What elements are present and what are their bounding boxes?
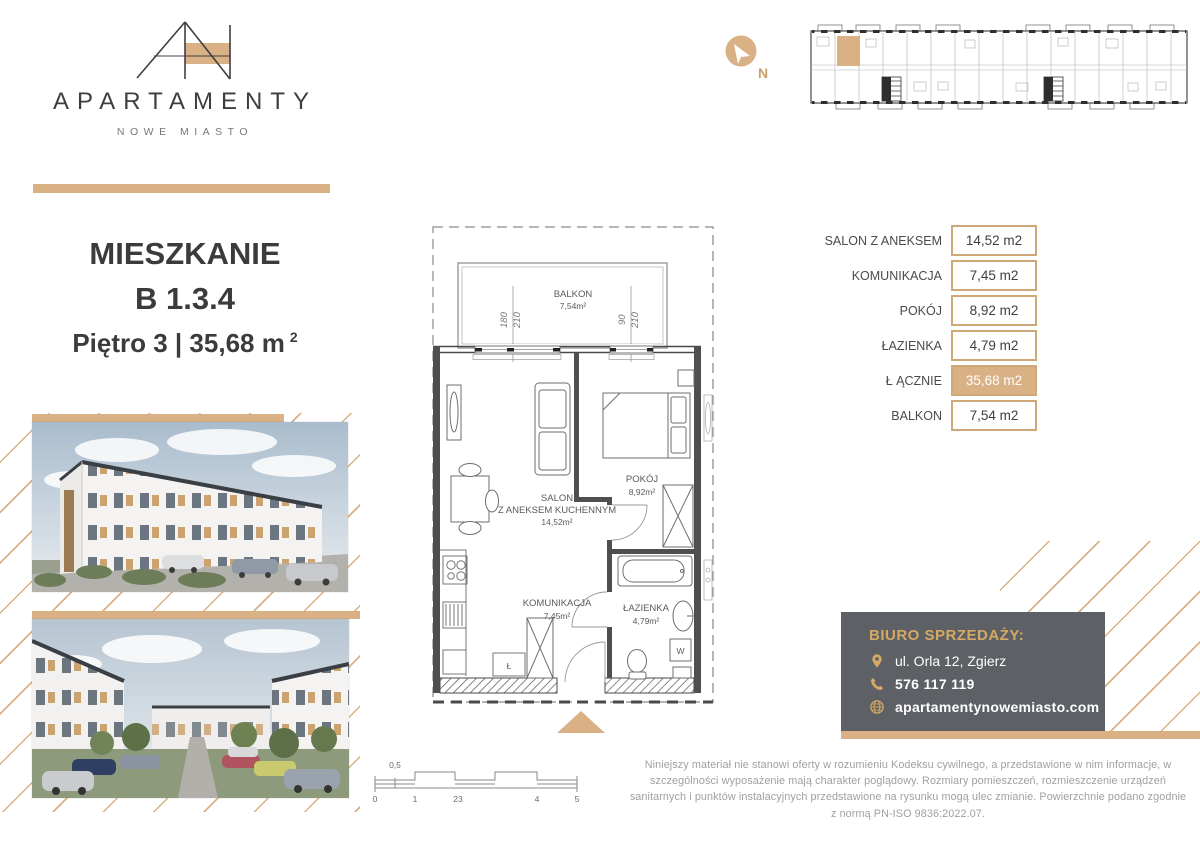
row-label: SALON Z ANEKSEM	[795, 234, 951, 248]
website-text[interactable]: apartamentynowemiasto.com	[895, 699, 1099, 715]
logo-monogram	[130, 18, 240, 82]
window1-width: 180	[499, 311, 510, 328]
overview-bottom-windows	[812, 101, 1186, 104]
row-label: KOMUNIKACJA	[795, 269, 951, 283]
building-photo-exterior	[32, 422, 348, 592]
pokoj-label: POKÓJ	[626, 474, 658, 485]
scale-5: 5	[575, 794, 580, 804]
scale-23: 23	[453, 794, 463, 804]
washer-label: W	[676, 646, 684, 656]
window-pokoj	[609, 344, 654, 360]
phone-icon	[869, 676, 885, 692]
sales-office-heading: BIURO SPRZEDAŻY:	[869, 627, 1105, 644]
kitchen	[440, 550, 525, 676]
row-value: 8,92 m2	[951, 295, 1037, 326]
salon-label-1: SALON	[541, 493, 573, 504]
floor-plan: BALKON 7,54m² 180 210 90 210	[425, 220, 725, 715]
gold-divider	[33, 184, 330, 193]
row-label: Ł ĄCZNIE	[795, 374, 951, 388]
pokoj-area: 8,92m²	[629, 487, 656, 497]
balkon-label: BALKON	[554, 289, 593, 300]
logo-gold-band	[185, 43, 230, 64]
table-row: BALKON 7,54 m2	[795, 400, 1037, 431]
brand-name: APARTAMENTY	[20, 88, 350, 116]
overview-highlighted-unit	[837, 36, 860, 66]
row-value: 7,54 m2	[951, 400, 1037, 431]
scale-bar: 0,5 0 1 23 4 5	[365, 758, 590, 808]
lazienka-label: ŁAZIENKA	[623, 603, 670, 614]
compass-north-label: N	[758, 65, 768, 81]
table-row-total: Ł ĄCZNIE 35,68 m2	[795, 365, 1037, 396]
photo2-gold-bar	[32, 611, 360, 619]
overview-outline	[811, 31, 1187, 103]
balkon-area: 7,54m²	[560, 301, 587, 311]
row-label: ŁAZIENKA	[795, 339, 951, 353]
row-value-total: 35,68 m2	[951, 365, 1037, 396]
overview-top-windows	[812, 30, 1186, 33]
row-label: BALKON	[795, 409, 951, 423]
table-row: POKÓJ 8,92 m2	[795, 295, 1037, 326]
title-mieszkanie: MIESZKANIE	[10, 232, 360, 277]
photo1-gold-bar	[32, 414, 284, 422]
title-unit-number: B 1.3.4	[10, 277, 360, 322]
hall-wardrobe	[527, 618, 553, 678]
scale-0: 0	[373, 794, 378, 804]
row-value: 4,79 m2	[951, 330, 1037, 361]
address-row: ul. Orla 12, Zgierz	[869, 653, 1105, 669]
apartment-title: MIESZKANIE B 1.3.4 Piętro 3 | 35,68 m2	[10, 232, 360, 359]
building-overview-plan	[808, 22, 1190, 112]
row-label: POKÓJ	[795, 304, 951, 318]
gold-footer-bar	[841, 731, 1200, 739]
table-row: ŁAZIENKA 4,79 m2	[795, 330, 1037, 361]
row-value: 14,52 m2	[951, 225, 1037, 256]
window2-height: 210	[630, 311, 641, 329]
area-superscript: 2	[290, 329, 298, 345]
salon-area: 14,52m²	[541, 517, 572, 527]
neighbour-fixtures	[704, 395, 712, 600]
globe-icon	[869, 699, 885, 715]
location-pin-icon	[869, 653, 885, 669]
compass: N	[720, 31, 776, 85]
salon-label-2: Z ANEKSEM KUCHENNYM	[498, 505, 616, 516]
brand-subtitle: NOWE MIASTO	[20, 126, 350, 138]
lazienka-area: 4,79m²	[633, 616, 660, 626]
window1-height: 210	[512, 311, 523, 329]
address-text: ul. Orla 12, Zgierz	[895, 653, 1006, 669]
komunikacja-area: 7,45m²	[544, 611, 571, 621]
website-row: apartamentynowemiasto.com	[869, 699, 1105, 715]
window2-width: 90	[617, 314, 628, 325]
scale-half-label: 0,5	[389, 760, 401, 770]
phone-row: 576 117 119	[869, 676, 1105, 692]
sales-office-box: BIURO SPRZEDAŻY: ul. Orla 12, Zgierz 576…	[841, 612, 1105, 731]
floor-area-text: Piętro 3 | 35,68 m	[72, 328, 285, 358]
row-value: 7,45 m2	[951, 260, 1037, 291]
scale-1: 1	[413, 794, 418, 804]
brochure-page: APARTAMENTY NOWE MIASTO MIESZKANIE B 1.3…	[0, 0, 1200, 849]
bedroom-furniture	[603, 370, 694, 547]
entrance-direction-triangle	[557, 711, 605, 733]
phone-text: 576 117 119	[895, 676, 975, 692]
building-photo-courtyard	[32, 619, 349, 798]
title-floor-area: Piętro 3 | 35,68 m2	[10, 328, 360, 359]
storage-label: Ł	[507, 661, 512, 671]
balcony: BALKON 7,54m²	[458, 263, 667, 348]
scale-4: 4	[535, 794, 540, 804]
table-row: SALON Z ANEKSEM 14,52 m2	[795, 225, 1037, 256]
komunikacja-label: KOMUNIKACJA	[523, 598, 592, 609]
room-areas-table: SALON Z ANEKSEM 14,52 m2 KOMUNIKACJA 7,4…	[795, 225, 1037, 435]
legal-disclaimer: Niniejszy materiał nie stanowi oferty w …	[628, 757, 1188, 822]
window-salon	[473, 344, 561, 360]
table-row: KOMUNIKACJA 7,45 m2	[795, 260, 1037, 291]
